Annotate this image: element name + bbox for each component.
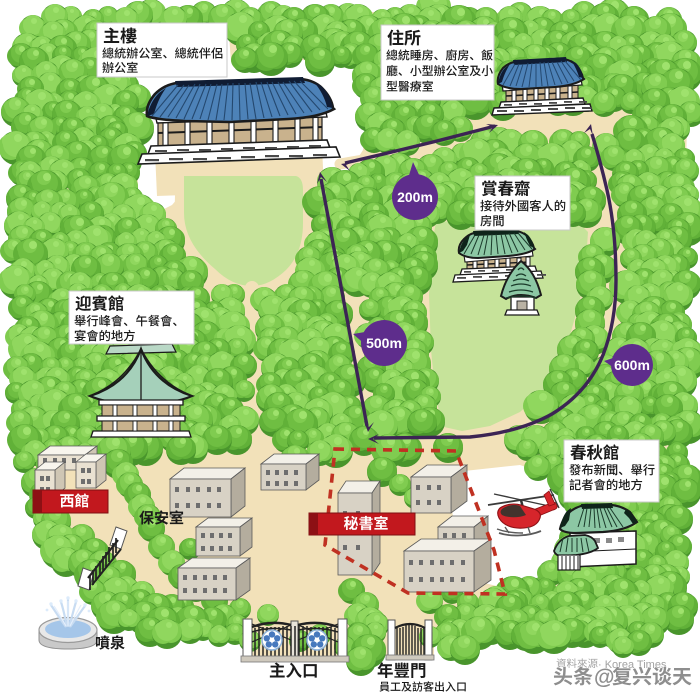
svg-text:500m: 500m	[366, 335, 402, 351]
svg-text:200m: 200m	[397, 189, 433, 205]
svg-text:@: @	[594, 666, 614, 689]
svg-text:600m: 600m	[614, 357, 650, 373]
